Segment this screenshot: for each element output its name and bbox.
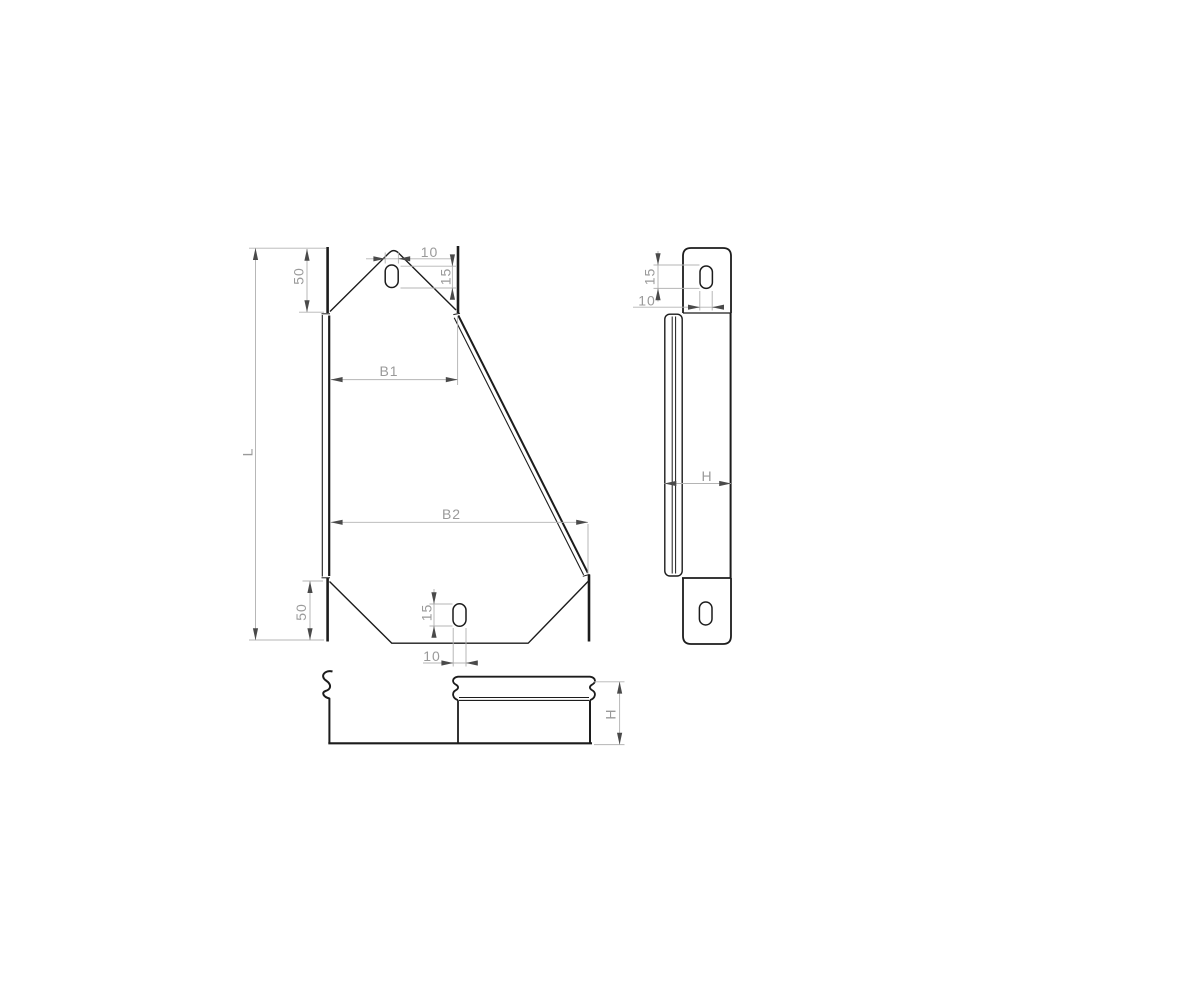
seam-panel-outline — [665, 314, 682, 576]
bottom-dimensions: H — [594, 682, 625, 745]
bottom-part-outline — [323, 671, 595, 743]
rolled-edge-curl — [323, 671, 332, 743]
dim-label-H-bottom: H — [603, 708, 619, 719]
front-dimensions: L 50 B1 B2 50 — [240, 244, 589, 667]
dim-label-10-side: 10 — [638, 293, 656, 309]
dim-label-H-side: H — [701, 468, 712, 484]
dim-label-15-top: 15 — [438, 268, 454, 286]
dim-label-B2: B2 — [442, 506, 461, 522]
bottom-tab-slot-hole — [699, 602, 712, 625]
dim-label-50-top: 50 — [291, 267, 307, 285]
top-tab-slot-hole — [700, 266, 712, 288]
sleeve-bead-profile — [453, 677, 595, 701]
front-part-outline — [322, 246, 590, 643]
bottom-tab-outline — [683, 578, 731, 644]
drawing-canvas: L 50 B1 B2 50 — [0, 0, 1200, 1000]
dim-label-L: L — [240, 448, 256, 457]
dim-label-15-bottom: 15 — [419, 604, 435, 622]
dim-label-10-bottom: 10 — [423, 648, 441, 664]
dim-label-50-bottom: 50 — [293, 603, 309, 621]
top-slot-hole — [385, 265, 398, 288]
dim-15-side — [654, 251, 700, 302]
technical-drawing: L 50 B1 B2 50 — [0, 0, 1200, 1000]
diagonal-seam-inner — [458, 316, 588, 573]
diagonal-seam-outer — [454, 318, 583, 575]
top-tab-outline — [683, 248, 731, 313]
dim-B2 — [331, 522, 588, 574]
dim-label-10-top: 10 — [421, 244, 439, 260]
dim-label-15-side: 15 — [642, 268, 658, 286]
dim-label-B1: B1 — [379, 363, 398, 379]
dim-10-top — [366, 253, 452, 264]
bottom-view: H — [323, 671, 624, 744]
side-view: 15 10 H — [633, 248, 731, 644]
front-view: L 50 B1 B2 50 — [240, 244, 590, 667]
bottom-flap-outline — [330, 581, 589, 643]
diagonal-seam-tick-top — [453, 313, 460, 314]
bottom-slot-hole — [453, 604, 466, 627]
